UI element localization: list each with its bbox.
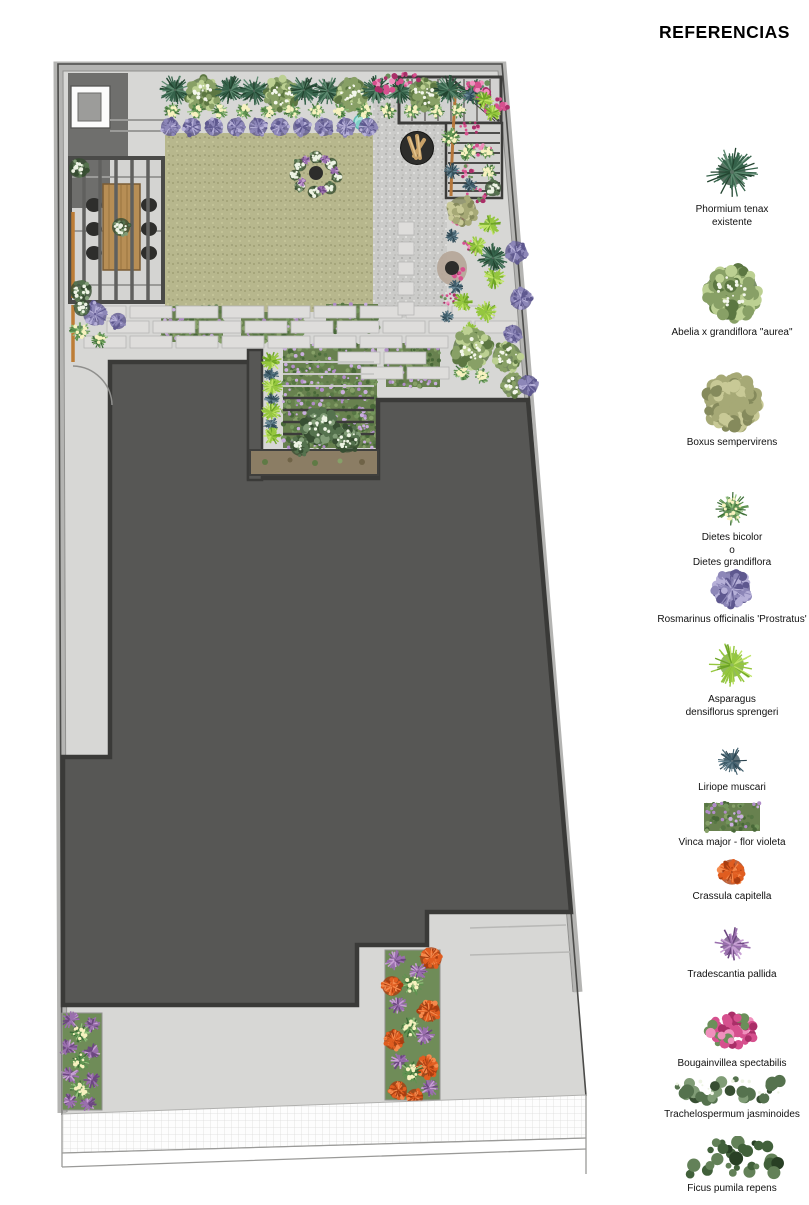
crassula-icon — [662, 856, 802, 888]
legend: Phormium tenaxexistenteAbelia x grandifl… — [647, 0, 809, 1200]
ficus-icon — [662, 1136, 802, 1180]
phormium-icon — [662, 143, 802, 201]
stepping-stone — [407, 367, 449, 379]
legend-item-trachelospermum: Trachelospermum jasminoides — [647, 1074, 809, 1122]
legend-item-label: Liriope muscari — [647, 782, 809, 795]
stepping-stone — [406, 336, 448, 348]
garden-plan — [0, 0, 620, 1200]
tradescantia-icon — [662, 924, 802, 966]
vinca-icon — [662, 800, 802, 834]
stepping-stone — [153, 321, 195, 333]
stepping-stone — [222, 306, 264, 318]
legend-item-label: Abelia x grandiflora "aurea" — [647, 327, 809, 340]
legend-item-label: Vinca major - flor violeta — [647, 837, 809, 850]
rosmarinus-icon — [662, 567, 802, 611]
legend-item-liriope: Liriope muscari — [647, 743, 809, 795]
stepping-stone — [130, 306, 172, 318]
boxus-icon — [662, 372, 802, 434]
plant-phormium — [706, 148, 758, 197]
legend-item-label: Dietes bicoloroDietes grandiflora — [647, 532, 809, 570]
stepping-stone — [268, 306, 310, 318]
lawn-tree — [309, 166, 323, 180]
legend-item-label: Asparagusdensiflorus sprengeri — [647, 694, 809, 719]
bed-tree — [445, 261, 459, 275]
page: { "legend": { "title": "REFERENCIAS", "i… — [0, 0, 809, 1200]
lawn — [165, 133, 373, 312]
legend-item-vinca: Vinca major - flor violeta — [647, 800, 809, 850]
legend-item-label: Phormium tenaxexistente — [647, 204, 809, 229]
plant-tradescantia — [715, 927, 751, 960]
vinca-patch — [704, 801, 761, 833]
plant-ficus — [686, 1136, 784, 1179]
legend-item-abelia: Abelia x grandiflora "aurea" — [647, 262, 809, 340]
abelia-icon — [662, 262, 802, 324]
plant-dietes — [716, 492, 749, 525]
legend-item-bougainvillea: Bougainvillea spectabilis — [647, 1007, 809, 1071]
legend-item-label: Trachelospermum jasminoides — [647, 1109, 809, 1122]
asparagus-icon — [662, 639, 802, 691]
stepping-stone — [199, 321, 241, 333]
legend-item-label: Bougainvillea spectabilis — [647, 1058, 809, 1071]
stepping-stone — [268, 336, 310, 348]
stepping-stone — [398, 282, 414, 295]
legend-item-label: Tradescantia pallida — [647, 969, 809, 982]
stepping-stone — [222, 336, 264, 348]
legend-item-tradescantia: Tradescantia pallida — [647, 924, 809, 982]
legend-item-ficus: Ficus pumila repens — [647, 1136, 809, 1196]
stepping-stone — [384, 352, 426, 364]
legend-item-label: Rosmarinus officinalis 'Prostratus' — [647, 614, 809, 627]
legend-item-phormium: Phormium tenaxexistente — [647, 143, 809, 229]
stepping-stone — [314, 306, 356, 318]
stepping-stone — [383, 321, 425, 333]
legend-item-label: Boxus sempervirens — [647, 437, 809, 450]
stepping-stone — [291, 321, 333, 333]
stepping-stone — [398, 262, 414, 275]
stepping-stone — [398, 302, 414, 315]
legend-item-label: Crassula capitella — [647, 891, 809, 904]
legend-item-dietes: Dietes bicoloroDietes grandiflora — [647, 489, 809, 570]
stepping-stone — [360, 306, 402, 318]
plant-trachelospermum — [675, 1075, 786, 1106]
stepping-stone — [360, 336, 402, 348]
legend-item-rosmarinus: Rosmarinus officinalis 'Prostratus' — [647, 567, 809, 627]
plant-trachelospermum — [310, 151, 323, 164]
dietes-icon — [662, 489, 802, 529]
plant-abelia — [702, 263, 763, 324]
bougainvillea-icon — [662, 1007, 802, 1055]
legend-item-label: Ficus pumila repens — [647, 1183, 809, 1196]
stepping-stone — [176, 336, 218, 348]
legend-item-asparagus: Asparagusdensiflorus sprengeri — [647, 639, 809, 719]
stepping-stone — [176, 306, 218, 318]
stepping-stone — [245, 321, 287, 333]
trachelospermum-icon — [662, 1074, 802, 1106]
plant-bougainvillea — [704, 1011, 758, 1049]
planter — [250, 450, 378, 475]
legend-item-crassula: Crassula capitella — [647, 856, 809, 904]
stepping-stone — [398, 242, 414, 255]
plant-asparagus — [709, 644, 752, 687]
legend-item-boxus: Boxus sempervirens — [647, 372, 809, 450]
stepping-stone — [314, 336, 356, 348]
plant-rosmarinus — [510, 287, 533, 310]
plant-rosmarinus — [710, 569, 752, 609]
liriope-icon — [662, 743, 802, 779]
fire-pit — [401, 132, 434, 165]
stepping-stone — [130, 336, 172, 348]
plant-crassula — [717, 859, 746, 885]
stepping-stone — [398, 222, 414, 235]
plant-liriope — [718, 748, 747, 775]
stepping-stone — [337, 321, 379, 333]
plant-boxus — [702, 372, 764, 432]
